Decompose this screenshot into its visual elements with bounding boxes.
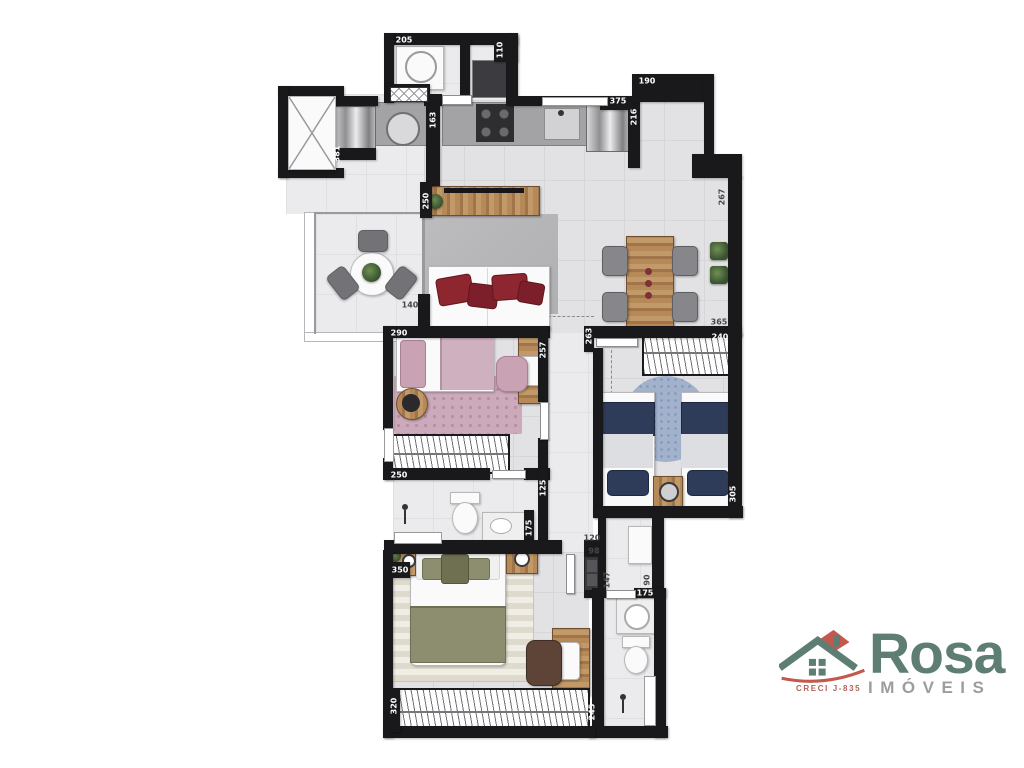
bedroom1-blanket — [440, 336, 494, 390]
table-decor — [645, 280, 652, 287]
wall — [384, 326, 550, 338]
shower-glass — [644, 676, 656, 726]
bathroom1-niche — [394, 532, 442, 544]
bedroom2-door — [596, 338, 638, 347]
dimension-label: 365 — [711, 318, 728, 327]
cabinet-shelf — [587, 560, 597, 572]
cabinet-shelf — [587, 574, 597, 586]
dimension-label: 175 — [637, 589, 654, 598]
dimension-label: 375 — [610, 97, 627, 106]
dining-chair — [672, 246, 698, 276]
entry-door — [442, 95, 472, 105]
bathroom1-door — [492, 470, 526, 479]
wall — [538, 326, 548, 402]
wall — [383, 326, 393, 430]
house-icon — [779, 627, 867, 689]
logo-subtitle-text: IMÓVEIS — [868, 678, 991, 698]
dimension-label: 381 — [333, 146, 342, 163]
wall — [692, 154, 742, 178]
dimension-label: 250 — [391, 471, 408, 480]
dining-chair — [602, 292, 628, 322]
table-decor — [645, 292, 652, 299]
dimension-label: 216 — [630, 109, 639, 126]
dimension-label: 90 — [643, 574, 652, 585]
wall — [383, 726, 595, 738]
corridor-floor — [548, 332, 593, 560]
master-chair — [526, 640, 562, 686]
dimension-label: 240 — [712, 333, 729, 342]
dimension-label: 305 — [729, 486, 738, 503]
balcony-glass-door — [422, 214, 425, 296]
twin-pillow-right — [687, 470, 729, 496]
dimension-label: 120 — [584, 534, 601, 543]
wall-plant — [710, 242, 728, 260]
hall-cabinet-white — [628, 526, 652, 564]
dimension-label: 263 — [585, 328, 594, 345]
wall — [592, 588, 606, 598]
curtain-track — [611, 350, 612, 394]
dimension-label: 267 — [718, 189, 727, 206]
bathroom2-basin — [624, 604, 650, 630]
wall — [506, 33, 518, 106]
table-decor — [645, 268, 652, 275]
dimension-label: 205 — [396, 36, 413, 45]
dimension-label: 163 — [429, 112, 438, 129]
bedroom1-pillow — [400, 340, 426, 388]
balcony-glass — [314, 212, 316, 334]
twin-blanket-right — [681, 402, 735, 436]
dimension-label: 245 — [588, 704, 597, 721]
dimension-label: 147 — [603, 572, 612, 589]
ceiling-projection — [548, 316, 594, 317]
sofa-pillow — [516, 280, 545, 306]
dimension-label: 190 — [639, 77, 656, 86]
shower-hose2 — [622, 700, 624, 713]
wall — [538, 438, 548, 468]
wall — [704, 74, 714, 160]
twin-sheet-right — [681, 434, 733, 468]
bedroom1-window — [384, 428, 394, 462]
dining-chair — [672, 292, 698, 322]
laundry-cabinet — [390, 87, 428, 102]
toilet2-bowl — [624, 646, 648, 674]
wall — [728, 176, 742, 336]
dimension-label: 320 — [390, 698, 399, 715]
dimension-label: 350 — [392, 566, 409, 575]
balcony-glass — [314, 212, 424, 214]
vanity-basin — [490, 518, 512, 534]
master-door — [566, 554, 575, 594]
bathroom2-door — [606, 590, 636, 599]
floor-plan-page: { "floorplan": { "type": "apartment-floo… — [0, 0, 1024, 768]
wall — [593, 348, 603, 518]
dimension-label: 125 — [539, 480, 548, 497]
dimension-label: 175 — [525, 520, 534, 537]
shower-hose — [404, 510, 406, 524]
wall — [652, 518, 664, 590]
dimension-label: 257 — [539, 342, 548, 359]
bedroom1-chair — [496, 356, 528, 392]
dimension-label: 290 — [391, 329, 408, 338]
twin-blanket-left — [601, 402, 655, 436]
dimension-label: 250 — [422, 193, 431, 210]
balcony-chair — [358, 230, 388, 252]
balcony-plant — [362, 263, 381, 282]
faucet — [558, 110, 564, 116]
wall — [588, 726, 668, 738]
wall — [330, 96, 378, 106]
elevator-shaft — [288, 96, 336, 170]
toilet-bowl — [452, 502, 478, 534]
dimension-label: 98 — [588, 547, 599, 556]
dimension-label: 110 — [496, 42, 505, 59]
logo-license-text: CRECI J-835 — [796, 684, 861, 693]
wall — [460, 38, 470, 100]
wall — [278, 86, 288, 178]
master-cushion — [441, 554, 469, 584]
dimension-label: 140 — [402, 301, 419, 310]
washer-drum — [405, 51, 437, 83]
twin-pillow-left — [607, 470, 649, 496]
wall-plant — [710, 266, 728, 284]
laundry-sink — [386, 112, 420, 146]
master-blanket — [410, 606, 506, 663]
twin-sheet-left — [601, 434, 653, 468]
shower-stall — [472, 60, 508, 98]
dining-chair — [602, 246, 628, 276]
bedroom1-door — [540, 402, 549, 440]
side-table-decor — [402, 394, 420, 412]
kitchen-window — [542, 97, 608, 106]
outside-mask — [714, 40, 804, 154]
nightstand-tray — [659, 482, 679, 502]
tv — [444, 188, 524, 193]
wall — [593, 506, 743, 518]
cooktop — [476, 104, 514, 142]
